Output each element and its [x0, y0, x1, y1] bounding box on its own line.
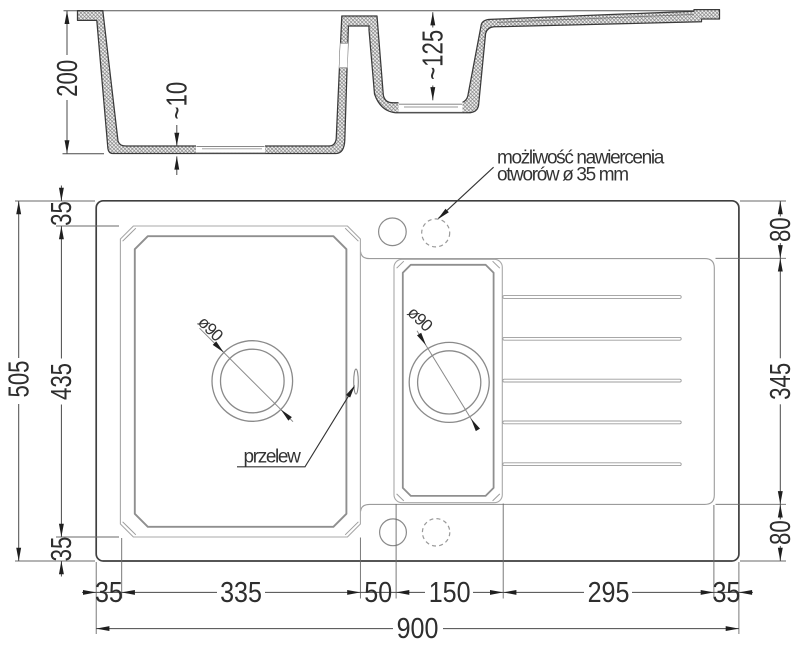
svg-text:900: 900: [397, 613, 439, 645]
svg-text:345: 345: [765, 363, 796, 400]
svg-text:otworów ø 35 mm: otworów ø 35 mm: [497, 165, 628, 186]
svg-text:200: 200: [52, 60, 83, 97]
svg-text:35: 35: [95, 577, 123, 609]
svg-text:435: 435: [47, 363, 78, 400]
svg-text:150: 150: [429, 577, 471, 609]
svg-text:35: 35: [47, 537, 78, 562]
svg-text:~10: ~10: [162, 82, 193, 120]
svg-text:80: 80: [765, 520, 796, 545]
svg-text:80: 80: [765, 217, 796, 242]
svg-text:35: 35: [712, 577, 740, 609]
svg-text:50: 50: [364, 577, 392, 609]
svg-text:335: 335: [220, 577, 262, 609]
svg-text:295: 295: [588, 577, 630, 609]
svg-text:35: 35: [47, 201, 78, 226]
svg-text:505: 505: [4, 360, 35, 397]
svg-text:przelew: przelew: [244, 446, 302, 467]
svg-text:~125: ~125: [418, 30, 449, 80]
